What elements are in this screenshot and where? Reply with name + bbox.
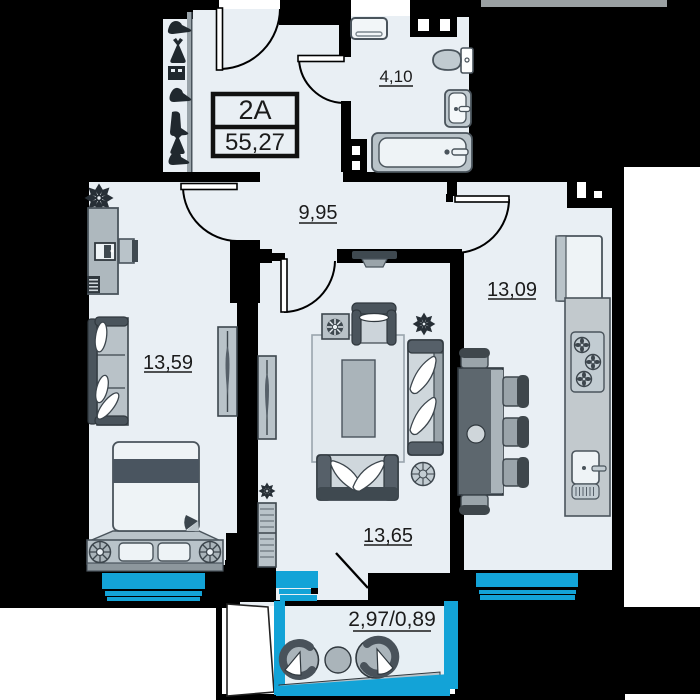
svg-text:2,97/0,89: 2,97/0,89 [348, 608, 436, 631]
svg-text:2A: 2A [238, 95, 271, 125]
svg-text:9,95: 9,95 [299, 202, 338, 224]
svg-text:13,59: 13,59 [143, 352, 193, 374]
svg-text:13,09: 13,09 [487, 279, 537, 301]
svg-text:55,27: 55,27 [225, 129, 285, 156]
svg-text:13,65: 13,65 [363, 525, 413, 547]
svg-text:4,10: 4,10 [379, 67, 412, 86]
